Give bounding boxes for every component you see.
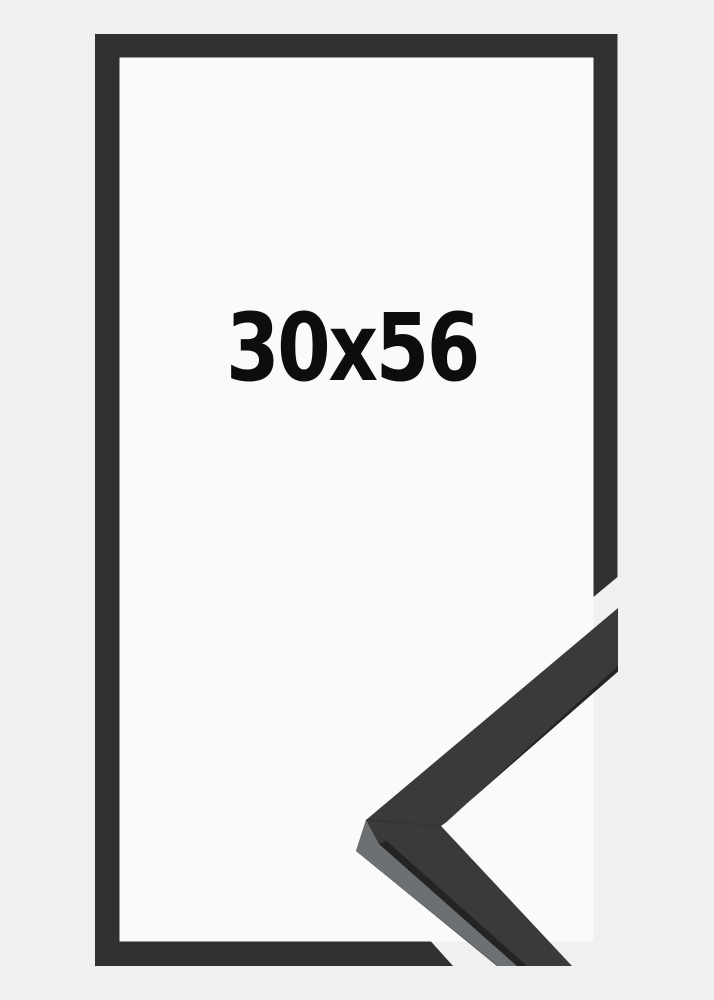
frame-illustration — [0, 0, 714, 1000]
product-image: 30x56 — [0, 0, 714, 1000]
frame-opening — [120, 58, 594, 942]
frame-size-label: 30x56 — [59, 302, 644, 396]
